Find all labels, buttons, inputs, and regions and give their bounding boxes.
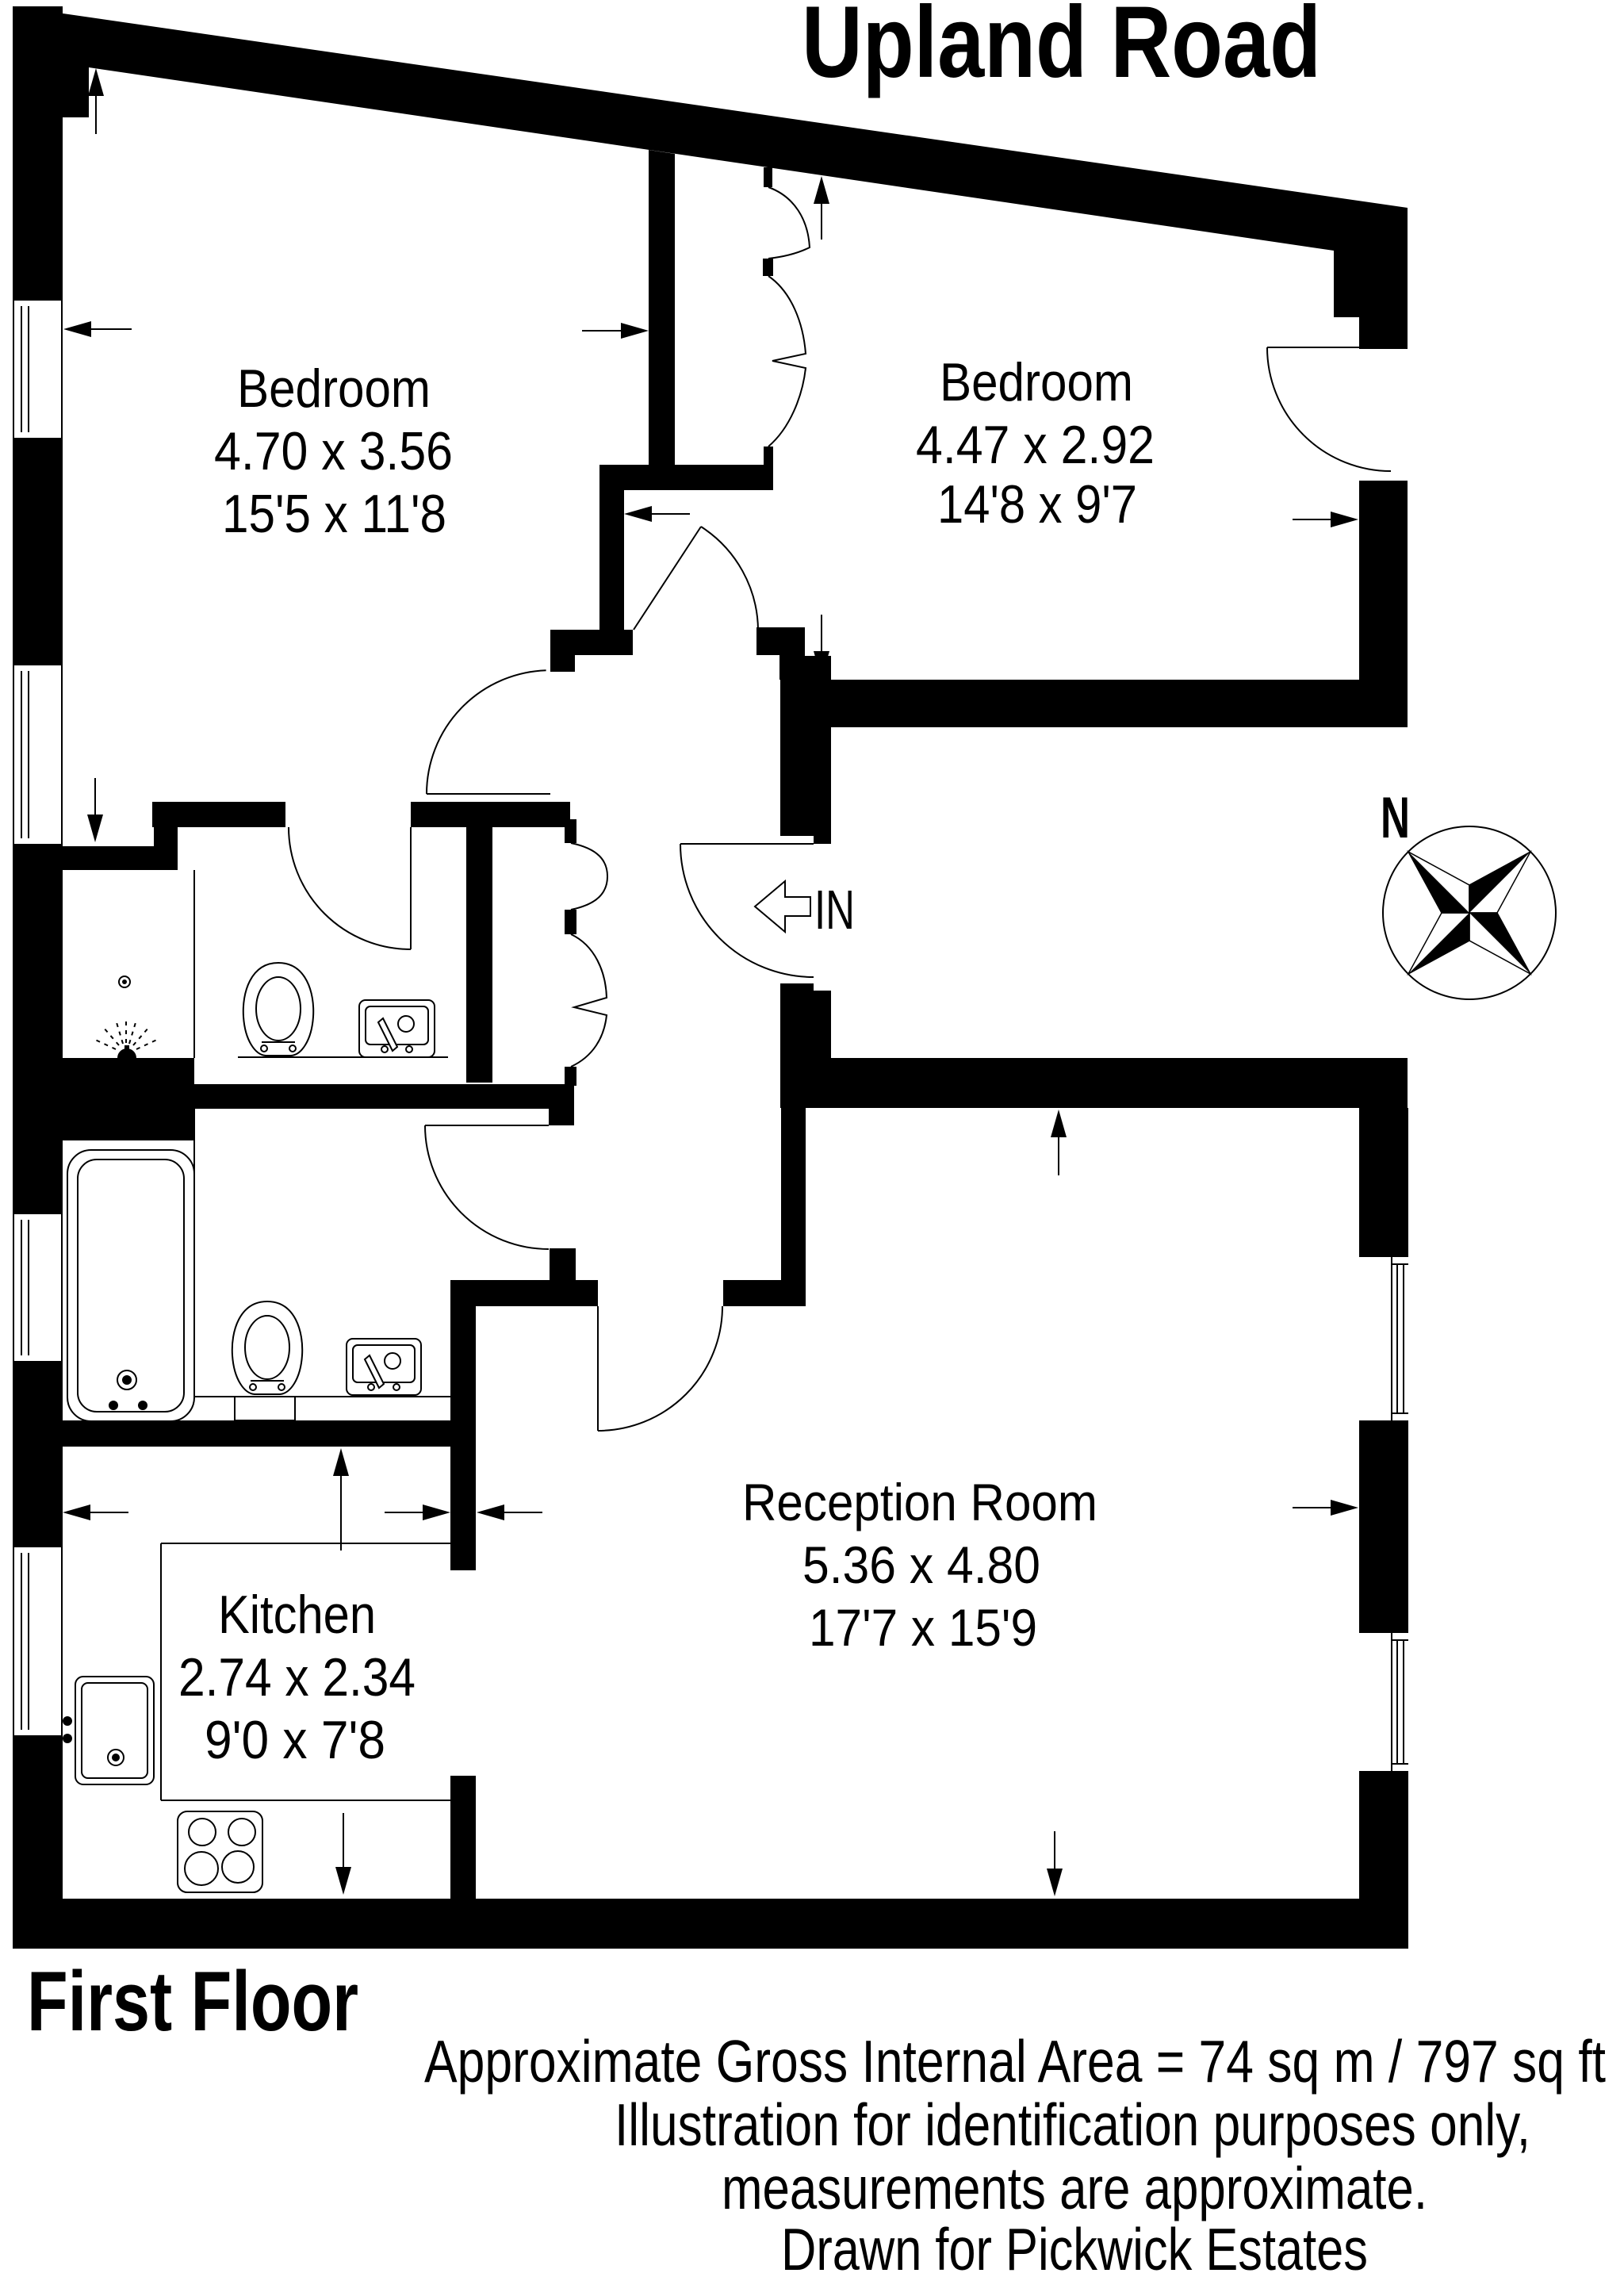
svg-text:Illustration for identificatio: Illustration for identification purposes…: [615, 2091, 1530, 2158]
svg-text:15'5 x 11'8: 15'5 x 11'8: [222, 484, 446, 544]
svg-text:2.74 x 2.34: 2.74 x 2.34: [178, 1647, 416, 1708]
svg-text:4.47 x 2.92: 4.47 x 2.92: [916, 415, 1155, 475]
svg-text:Kitchen: Kitchen: [218, 1585, 376, 1645]
svg-text:17'7 x 15'9: 17'7 x 15'9: [809, 1598, 1037, 1657]
svg-text:9'0 x 7'8: 9'0 x 7'8: [205, 1710, 385, 1770]
svg-text:Drawn for Pickwick Estates: Drawn for Pickwick Estates: [781, 2216, 1368, 2273]
svg-text:measurements are approximate.: measurements are approximate.: [722, 2155, 1427, 2221]
svg-text:5.36 x 4.80: 5.36 x 4.80: [802, 1535, 1040, 1594]
svg-text:Upland Road: Upland Road: [802, 0, 1321, 99]
svg-text:Reception Room: Reception Room: [742, 1473, 1097, 1531]
svg-text:Bedroom: Bedroom: [237, 358, 431, 419]
svg-text:Approximate Gross Internal Are: Approximate Gross Internal Area = 74 sq …: [424, 2028, 1606, 2095]
svg-text:N: N: [1381, 786, 1410, 850]
svg-text:4.70 x 3.56: 4.70 x 3.56: [214, 421, 453, 481]
svg-text:14'8 x 9'7: 14'8 x 9'7: [937, 474, 1137, 535]
svg-text:First Floor: First Floor: [27, 1953, 358, 2049]
svg-text:IN: IN: [814, 879, 855, 941]
svg-text:Bedroom: Bedroom: [940, 352, 1133, 412]
